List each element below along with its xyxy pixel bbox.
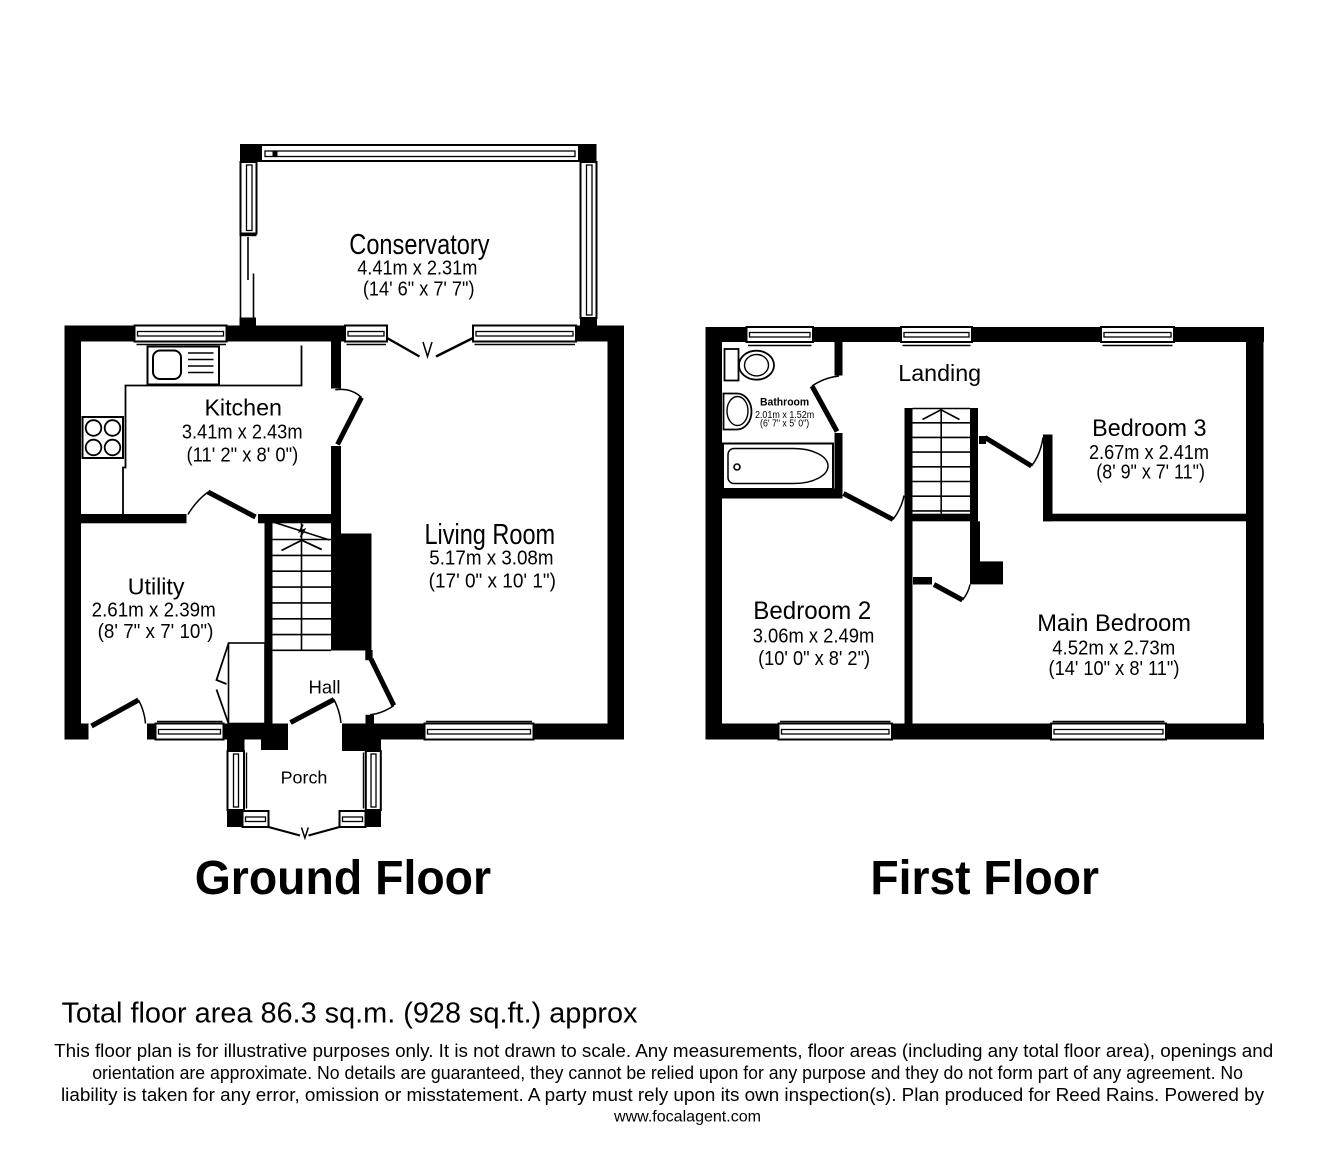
svg-text:4.41m x 2.31m: 4.41m x 2.31m xyxy=(357,258,477,280)
svg-text:Porch: Porch xyxy=(281,768,328,788)
svg-text:(11' 2" x 8' 0"): (11' 2" x 8' 0") xyxy=(187,444,299,466)
svg-text:This floor plan is for illustr: This floor plan is for illustrative purp… xyxy=(54,1040,1273,1061)
svg-text:orientation are approximate. N: orientation are approximate. No details … xyxy=(92,1062,1243,1083)
svg-text:(17' 0" x 10' 1"): (17' 0" x 10' 1") xyxy=(429,571,556,593)
svg-text:Hall: Hall xyxy=(309,677,341,698)
svg-text:First Floor: First Floor xyxy=(870,852,1099,905)
svg-text:3.41m x 2.43m: 3.41m x 2.43m xyxy=(182,422,303,444)
svg-text:Ground Floor: Ground Floor xyxy=(195,852,491,905)
svg-text:Bedroom 3: Bedroom 3 xyxy=(1092,415,1206,442)
svg-text:liability is taken for any err: liability is taken for any error, omissi… xyxy=(61,1084,1265,1105)
svg-text:(14' 6" x 7' 7"): (14' 6" x 7' 7") xyxy=(363,279,475,301)
svg-text:(14' 10" x 8' 11"): (14' 10" x 8' 11") xyxy=(1049,658,1180,680)
svg-text:5.17m x 3.08m: 5.17m x 3.08m xyxy=(429,547,553,569)
svg-text:Bathroom: Bathroom xyxy=(760,396,809,408)
svg-text:Bedroom 2: Bedroom 2 xyxy=(753,597,871,625)
svg-text:(8' 9" x 7' 11"): (8' 9" x 7' 11") xyxy=(1096,462,1205,484)
svg-text:Main Bedroom: Main Bedroom xyxy=(1037,610,1191,637)
svg-text:(10' 0" x 8' 2"): (10' 0" x 8' 2") xyxy=(758,648,870,670)
svg-text:www.focalagent.com: www.focalagent.com xyxy=(613,1109,761,1126)
svg-text:(8' 7" x 7' 10"): (8' 7" x 7' 10") xyxy=(98,621,214,643)
svg-text:(6' 7" x 5' 0"): (6' 7" x 5' 0") xyxy=(760,418,809,429)
svg-text:4.52m x 2.73m: 4.52m x 2.73m xyxy=(1052,637,1175,659)
svg-text:Total floor area 86.3 sq.m. (9: Total floor area 86.3 sq.m. (928 sq.ft.)… xyxy=(62,998,639,1030)
svg-text:Kitchen: Kitchen xyxy=(204,395,282,421)
svg-text:Living Room: Living Room xyxy=(424,519,555,551)
svg-text:Conservatory: Conservatory xyxy=(349,229,490,261)
svg-text:2.61m x 2.39m: 2.61m x 2.39m xyxy=(92,600,216,622)
svg-text:Utility: Utility xyxy=(128,573,185,599)
svg-text:Landing: Landing xyxy=(898,360,981,386)
svg-text:3.06m x 2.49m: 3.06m x 2.49m xyxy=(753,626,875,648)
